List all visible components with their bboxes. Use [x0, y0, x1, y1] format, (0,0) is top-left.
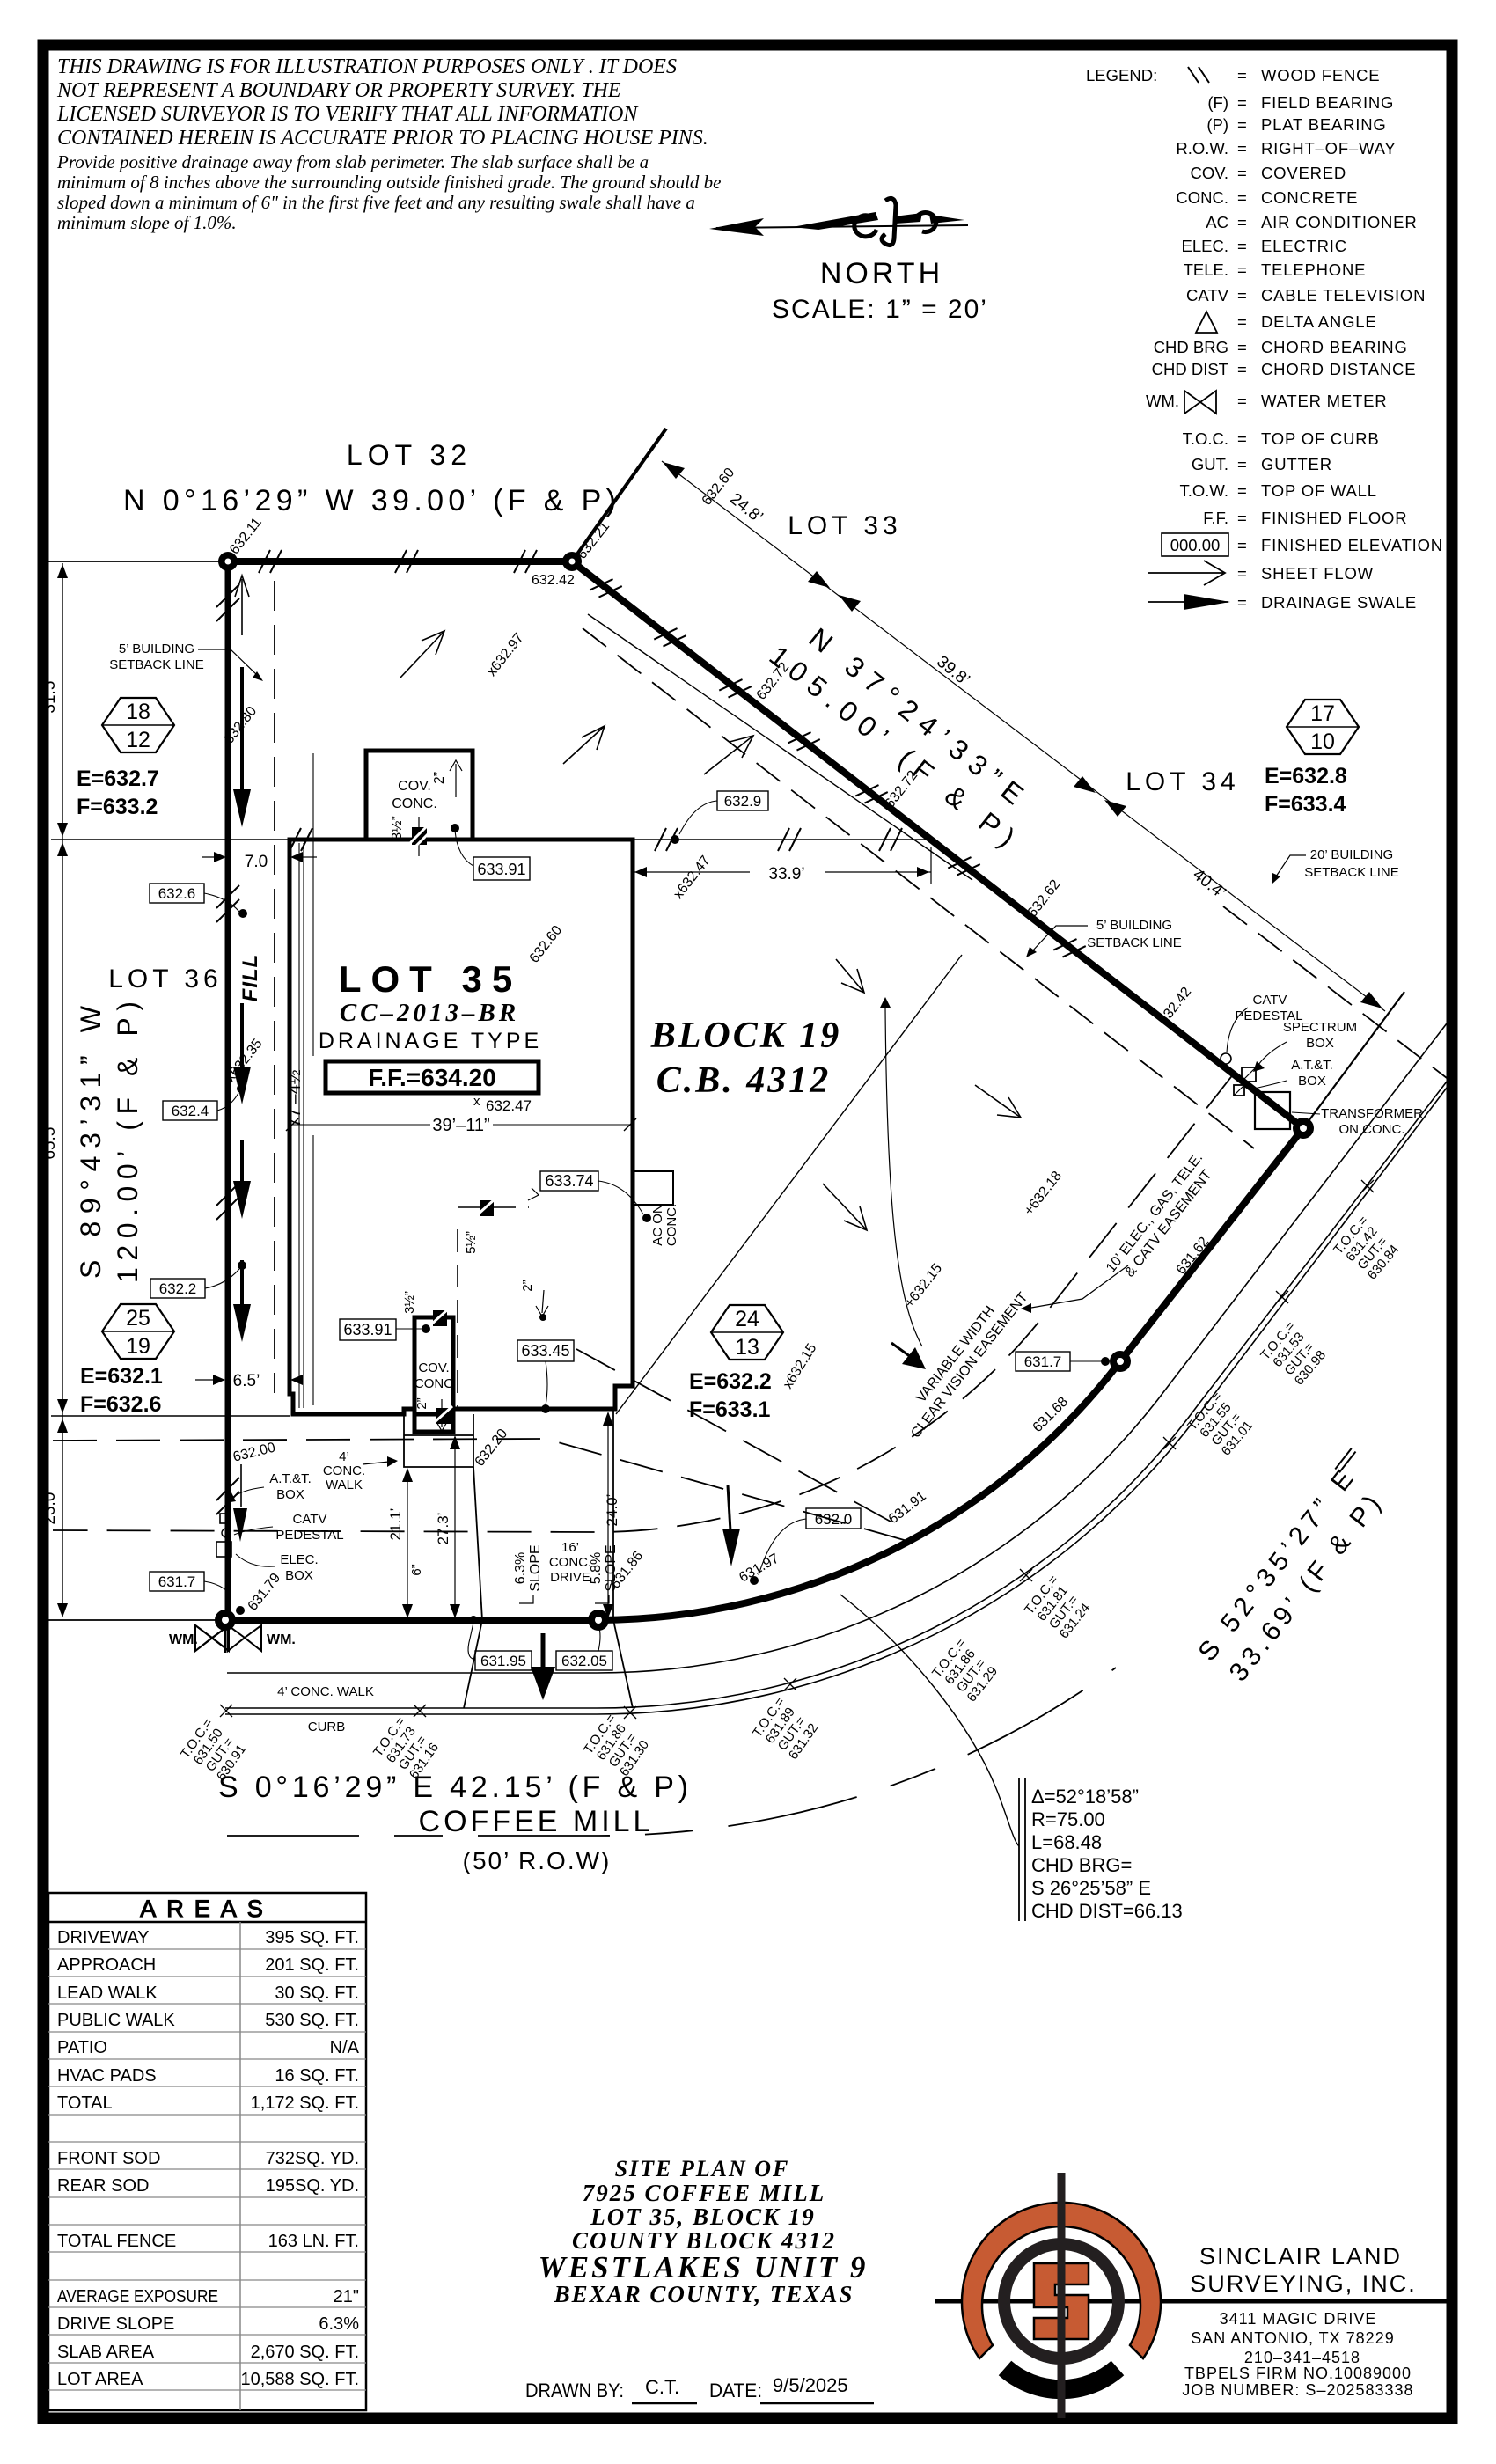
svg-text:SETBACK LINE: SETBACK LINE: [1304, 865, 1399, 880]
svg-text:=: =: [1237, 213, 1247, 231]
svg-text:632.6: 632.6: [158, 885, 196, 902]
svg-text:21": 21": [334, 2287, 359, 2306]
svg-text:BOX: BOX: [1306, 1036, 1334, 1051]
svg-text:3½”: 3½”: [402, 1291, 417, 1314]
svg-text:CHD BRG: CHD BRG: [1154, 338, 1228, 356]
svg-text:=: =: [1237, 66, 1247, 84]
svg-text:6”: 6”: [409, 1564, 424, 1575]
svg-text:SURVEYING, INC.: SURVEYING, INC.: [1190, 2270, 1417, 2297]
svg-text:33.9’: 33.9’: [768, 865, 804, 884]
svg-text:F=632.6: F=632.6: [80, 1392, 161, 1417]
svg-text:TOTAL: TOTAL: [57, 2094, 113, 2113]
svg-text:9/5/2025: 9/5/2025: [773, 2374, 848, 2396]
svg-text:6.5’: 6.5’: [233, 1372, 260, 1390]
svg-text:632.9: 632.9: [724, 793, 762, 810]
svg-text:LOT 35, BLOCK 19: LOT 35, BLOCK 19: [590, 2204, 816, 2230]
svg-text:3411 MAGIC DRIVE: 3411 MAGIC DRIVE: [1220, 2310, 1377, 2328]
svg-text:SLOPE: SLOPE: [604, 1544, 619, 1591]
svg-text:631.95: 631.95: [480, 1653, 526, 1669]
svg-text:x: x: [473, 1094, 480, 1109]
svg-text:AC: AC: [1206, 213, 1228, 231]
svg-text:19: 19: [126, 1334, 150, 1359]
svg-text:SPECTRUM: SPECTRUM: [1283, 1020, 1357, 1035]
svg-text:732SQ. YD.: 732SQ. YD.: [266, 2149, 359, 2168]
svg-text:10: 10: [1310, 730, 1335, 754]
svg-text:2”: 2”: [432, 772, 447, 784]
svg-text:JOB NUMBER: S–202583338: JOB NUMBER: S–202583338: [1182, 2381, 1413, 2399]
svg-text:LOT 36: LOT 36: [108, 964, 223, 994]
svg-text:R=75.00: R=75.00: [1031, 1808, 1105, 1830]
svg-text:1,172 SQ. FT.: 1,172 SQ. FT.: [251, 2094, 359, 2113]
svg-text:633.45: 633.45: [521, 1342, 569, 1360]
svg-text:CATV: CATV: [293, 1512, 327, 1527]
svg-text:2”: 2”: [414, 1397, 429, 1409]
svg-text:7925 COFFEE MILL: 7925 COFFEE MILL: [583, 2180, 826, 2206]
svg-text:=: =: [1237, 312, 1247, 331]
svg-text:SAN ANTONIO, TX 78229: SAN ANTONIO, TX 78229: [1191, 2329, 1394, 2347]
svg-text:3½”: 3½”: [390, 816, 405, 840]
svg-text:R.O.W.: R.O.W.: [1176, 139, 1228, 158]
svg-text:AVERAGE EXPOSURE: AVERAGE EXPOSURE: [57, 2287, 218, 2306]
svg-text:WESTLAKES UNIT 9: WESTLAKES UNIT 9: [539, 2250, 869, 2284]
svg-text:CHD DIST=66.13: CHD DIST=66.13: [1031, 1900, 1183, 1922]
svg-text:LOT 34: LOT 34: [1126, 767, 1240, 796]
svg-text:5½”: 5½”: [464, 1231, 479, 1254]
svg-text:TOTAL FENCE: TOTAL FENCE: [57, 2232, 176, 2251]
svg-text:24: 24: [735, 1307, 759, 1331]
svg-text:COVERED: COVERED: [1261, 164, 1346, 182]
svg-text:CONC.: CONC.: [392, 796, 437, 811]
svg-text:COV.: COV.: [418, 1360, 449, 1375]
svg-text:=: =: [1237, 429, 1247, 448]
svg-text:=: =: [1237, 509, 1247, 527]
svg-text:DATE:: DATE:: [709, 2380, 762, 2402]
svg-text:GUTTER: GUTTER: [1261, 455, 1332, 473]
svg-text:=: =: [1237, 286, 1247, 304]
svg-text:sloped down a minimum of 6" in: sloped down a minimum of 6" in the first…: [57, 192, 695, 213]
svg-text:BOX: BOX: [1298, 1074, 1326, 1089]
svg-text:NOT REPRESENT A BOUNDARY OR PR: NOT REPRESENT A BOUNDARY OR PROPERTY SUR…: [56, 79, 621, 102]
svg-text:TELEPHONE: TELEPHONE: [1261, 260, 1366, 279]
svg-text:LOT AREA: LOT AREA: [57, 2370, 143, 2389]
svg-text:LOT 32: LOT 32: [347, 439, 472, 471]
svg-text:BOX: BOX: [276, 1487, 304, 1502]
svg-text:27.3’: 27.3’: [435, 1513, 451, 1545]
svg-text:DRAINAGE TYPE: DRAINAGE TYPE: [319, 1029, 542, 1053]
svg-text:632.2: 632.2: [159, 1280, 197, 1297]
svg-text:10,588 SQ. FT.: 10,588 SQ. FT.: [240, 2370, 359, 2389]
svg-text:TBPELS FIRM NO.10089000: TBPELS FIRM NO.10089000: [1184, 2365, 1412, 2382]
svg-text:DRAINAGE SWALE: DRAINAGE SWALE: [1261, 593, 1417, 612]
svg-text:SCALE: 1” = 20’: SCALE: 1” = 20’: [772, 295, 988, 324]
svg-text:E=632.1: E=632.1: [80, 1364, 163, 1389]
svg-text:CC–2013–BR: CC–2013–BR: [340, 999, 519, 1027]
svg-text:Δ=52°18’58”: Δ=52°18’58”: [1031, 1786, 1139, 1808]
svg-text:632.4: 632.4: [172, 1103, 209, 1119]
svg-text:SLAB AREA: SLAB AREA: [57, 2343, 155, 2362]
svg-text:C.B. 4312: C.B. 4312: [656, 1060, 832, 1101]
svg-text:=: =: [1237, 564, 1247, 583]
svg-text:TRANSFORMER: TRANSFORMER: [1321, 1106, 1423, 1121]
svg-text:Provide positive drainage away: Provide positive drainage away from slab…: [56, 151, 649, 172]
svg-text:=: =: [1237, 455, 1247, 473]
svg-text:GUT.: GUT.: [1192, 455, 1228, 473]
svg-text:195SQ. YD.: 195SQ. YD.: [266, 2176, 359, 2196]
svg-text:632.0: 632.0: [815, 1511, 853, 1528]
svg-text:=: =: [1237, 93, 1247, 112]
svg-text:FIELD BEARING: FIELD BEARING: [1261, 93, 1394, 112]
svg-text:632.05: 632.05: [561, 1653, 607, 1669]
svg-text:CONC: CONC: [414, 1376, 453, 1391]
svg-text:39’–11”: 39’–11”: [432, 1116, 489, 1135]
svg-text:FRONT SOD: FRONT SOD: [57, 2149, 160, 2168]
svg-text:17: 17: [1310, 701, 1335, 726]
svg-text:PEDESTAL: PEDESTAL: [275, 1528, 343, 1543]
svg-text:SINCLAIR LAND: SINCLAIR LAND: [1199, 2243, 1402, 2270]
svg-text:ELECTRIC: ELECTRIC: [1261, 237, 1347, 255]
svg-text:THIS DRAWING IS FOR ILLUSTRATI: THIS DRAWING IS FOR ILLUSTRATION PURPOSE…: [57, 55, 677, 78]
svg-text:PUBLIC WALK: PUBLIC WALK: [57, 2011, 175, 2030]
svg-text:E=632.7: E=632.7: [77, 766, 159, 791]
svg-text:CABLE TELEVISION: CABLE TELEVISION: [1261, 286, 1426, 304]
svg-text:WM.: WM.: [267, 1632, 296, 1647]
svg-text:=: =: [1237, 481, 1247, 500]
svg-text:A.T.&T.: A.T.&T.: [269, 1471, 312, 1486]
svg-text:APPROACH: APPROACH: [57, 1955, 156, 1975]
svg-text:minimum slope of 1.0%.: minimum slope of 1.0%.: [57, 212, 237, 233]
svg-text:20’ BUILDING: 20’ BUILDING: [1310, 847, 1393, 862]
svg-text:F.F.=634.20: F.F.=634.20: [368, 1064, 496, 1091]
svg-text:LICENSED SURVEYOR IS TO VERIFY: LICENSED SURVEYOR IS TO VERIFY THAT ALL …: [56, 103, 639, 126]
svg-text:ELEC.: ELEC.: [1182, 237, 1228, 255]
svg-text:000.00: 000.00: [1170, 536, 1221, 554]
svg-text:F=633.2: F=633.2: [77, 795, 158, 819]
svg-text:TOP OF CURB: TOP OF CURB: [1261, 429, 1380, 448]
svg-text:18: 18: [126, 700, 150, 724]
svg-text:NORTH: NORTH: [820, 257, 943, 290]
svg-text:C.T.: C.T.: [645, 2376, 679, 2398]
svg-text:A.T.&T.: A.T.&T.: [1291, 1058, 1333, 1073]
svg-text:CHORD DISTANCE: CHORD DISTANCE: [1261, 360, 1416, 378]
svg-text:CONC.: CONC.: [323, 1463, 365, 1478]
svg-text:24.0’: 24.0’: [604, 1494, 620, 1527]
svg-text:7.0: 7.0: [245, 853, 268, 871]
svg-text:DRIVEWAY: DRIVEWAY: [57, 1928, 149, 1947]
svg-text:FINISHED ELEVATION: FINISHED ELEVATION: [1261, 536, 1443, 554]
svg-text:=: =: [1237, 338, 1247, 356]
svg-text:=: =: [1237, 237, 1247, 255]
svg-text:DRAWN BY:: DRAWN BY:: [525, 2380, 624, 2402]
svg-text:2,670 SQ. FT.: 2,670 SQ. FT.: [251, 2343, 359, 2362]
svg-text:65.5’: 65.5’: [40, 1123, 59, 1159]
svg-text:DRIVE: DRIVE: [550, 1570, 590, 1585]
svg-text:AREAS: AREAS: [140, 1896, 274, 1922]
svg-text:AIR CONDITIONER: AIR CONDITIONER: [1261, 213, 1417, 231]
svg-text:632.42: 632.42: [532, 573, 575, 588]
svg-text:PATIO: PATIO: [57, 2038, 107, 2057]
svg-text:CONC.: CONC.: [664, 1204, 679, 1246]
svg-text:S 26°25’58” E: S 26°25’58” E: [1031, 1877, 1151, 1899]
svg-text:16 SQ. FT.: 16 SQ. FT.: [275, 2066, 359, 2086]
svg-text:BOX: BOX: [285, 1568, 313, 1583]
svg-text:SETBACK LINE: SETBACK LINE: [109, 657, 204, 672]
svg-text:25: 25: [126, 1306, 150, 1331]
svg-text:530 SQ. FT.: 530 SQ. FT.: [265, 2011, 359, 2030]
svg-text:CURB: CURB: [308, 1720, 346, 1734]
svg-text:4’ CONC. WALK: 4’ CONC. WALK: [277, 1684, 374, 1699]
svg-text:5’ BUILDING: 5’ BUILDING: [1096, 918, 1172, 933]
svg-text:632.47: 632.47: [486, 1097, 532, 1114]
svg-text:6.3%: 6.3%: [319, 2314, 359, 2334]
svg-text:ELEC.: ELEC.: [280, 1552, 318, 1567]
svg-text:633.91: 633.91: [343, 1321, 392, 1338]
svg-text:(F): (F): [1207, 93, 1228, 112]
svg-text:16’: 16’: [561, 1540, 579, 1555]
svg-text:=: =: [1237, 593, 1247, 612]
svg-text:=: =: [1237, 360, 1247, 378]
svg-text:COFFEE MILL: COFFEE MILL: [419, 1805, 654, 1838]
svg-text:E=632.8: E=632.8: [1265, 764, 1347, 788]
svg-text:AC ON: AC ON: [650, 1204, 665, 1246]
svg-text:minimum of 8 inches above the: minimum of 8 inches above the surroundin…: [57, 172, 721, 193]
svg-text:CATV: CATV: [1253, 993, 1287, 1008]
svg-text:=: =: [1237, 260, 1247, 279]
svg-text:TELE.: TELE.: [1184, 260, 1228, 279]
svg-text:21.1’: 21.1’: [387, 1508, 404, 1541]
svg-text:6.3%: 6.3%: [513, 1552, 528, 1584]
svg-text:633.91: 633.91: [477, 861, 525, 878]
svg-text:LEGEND:: LEGEND:: [1086, 66, 1157, 84]
svg-text:631.7: 631.7: [158, 1573, 196, 1590]
svg-text:SETBACK LINE: SETBACK LINE: [1087, 935, 1182, 950]
svg-text:(P): (P): [1206, 115, 1228, 134]
svg-text:COV.: COV.: [1190, 164, 1228, 182]
svg-text:ON CONC.: ON CONC.: [1339, 1122, 1405, 1137]
svg-text:CONCRETE: CONCRETE: [1261, 188, 1358, 207]
svg-text:163 LN. FT.: 163 LN. FT.: [268, 2232, 359, 2251]
svg-text:WM.: WM.: [169, 1632, 198, 1647]
svg-text:5’ BUILDING: 5’ BUILDING: [119, 642, 194, 656]
svg-text:F=633.1: F=633.1: [689, 1397, 771, 1422]
svg-text:=: =: [1237, 188, 1247, 207]
svg-text:395 SQ. FT.: 395 SQ. FT.: [265, 1928, 359, 1947]
svg-text:WALK: WALK: [326, 1478, 363, 1492]
svg-text:L=68.48: L=68.48: [1031, 1831, 1102, 1853]
svg-text:FINISHED FLOOR: FINISHED FLOOR: [1261, 509, 1407, 527]
svg-text:633.74: 633.74: [545, 1172, 593, 1190]
svg-text:LOT 33: LOT 33: [788, 511, 902, 540]
svg-text:30 SQ. FT.: 30 SQ. FT.: [275, 1984, 359, 2003]
svg-text:=: =: [1237, 139, 1247, 158]
svg-text:T.O.C.: T.O.C.: [1183, 429, 1228, 448]
svg-text:RIGHT–OF–WAY: RIGHT–OF–WAY: [1261, 139, 1397, 158]
svg-text:COV.: COV.: [398, 779, 431, 794]
svg-text:N/A: N/A: [330, 2038, 360, 2057]
svg-text:CATV: CATV: [1186, 286, 1229, 304]
svg-text:LOT 35: LOT 35: [339, 958, 522, 1000]
svg-text:77’–4½”: 77’–4½”: [285, 1064, 304, 1127]
svg-text:CHD DIST: CHD DIST: [1152, 360, 1228, 378]
svg-text:F.F.: F.F.: [1203, 509, 1228, 527]
svg-text:SHEET FLOW: SHEET FLOW: [1261, 564, 1374, 583]
svg-text:WOOD FENCE: WOOD FENCE: [1261, 66, 1380, 84]
svg-text:=: =: [1237, 392, 1247, 410]
svg-text:FILL: FILL: [238, 954, 262, 1002]
svg-text:BEXAR COUNTY, TEXAS: BEXAR COUNTY, TEXAS: [554, 2281, 854, 2307]
svg-text:PLAT BEARING: PLAT BEARING: [1261, 115, 1387, 134]
svg-text:CONC.: CONC.: [1176, 188, 1228, 207]
svg-text:CONTAINED HEREIN IS ACCURATE P: CONTAINED HEREIN IS ACCURATE PRIOR TO PL…: [57, 127, 708, 150]
svg-text:2”: 2”: [520, 1280, 535, 1291]
svg-text:LEAD WALK: LEAD WALK: [57, 1984, 158, 2003]
svg-text:631.7: 631.7: [1024, 1353, 1062, 1370]
svg-text:4’: 4’: [339, 1449, 349, 1464]
svg-text:SLOPE: SLOPE: [528, 1544, 543, 1591]
svg-text:DELTA ANGLE: DELTA ANGLE: [1261, 312, 1377, 331]
svg-text:REAR SOD: REAR SOD: [57, 2176, 149, 2196]
svg-text:DRIVE SLOPE: DRIVE SLOPE: [57, 2314, 174, 2334]
svg-text:=: =: [1237, 536, 1247, 554]
svg-text:CHORD BEARING: CHORD BEARING: [1261, 338, 1408, 356]
svg-text:T.O.W.: T.O.W.: [1180, 481, 1229, 500]
svg-text:12: 12: [126, 728, 150, 752]
svg-text:SITE PLAN OF: SITE PLAN OF: [615, 2156, 790, 2182]
svg-text:CONC.: CONC.: [549, 1555, 591, 1570]
svg-text:=: =: [1237, 115, 1247, 134]
svg-text:S 89°43’31” W: S 89°43’31” W: [75, 1005, 106, 1279]
svg-text:F=633.4: F=633.4: [1265, 792, 1346, 817]
svg-text:5.8%: 5.8%: [589, 1552, 604, 1584]
svg-text:WM.: WM.: [1146, 392, 1179, 410]
svg-text:HVAC PADS: HVAC PADS: [57, 2066, 157, 2086]
svg-text:BLOCK 19: BLOCK 19: [650, 1016, 842, 1056]
svg-text:E=632.2: E=632.2: [689, 1369, 772, 1394]
svg-text:13: 13: [735, 1335, 759, 1360]
svg-text:31.5’: 31.5’: [40, 677, 59, 713]
svg-text:201 SQ. FT.: 201 SQ. FT.: [265, 1955, 359, 1975]
svg-text:CHD BRG=: CHD BRG=: [1031, 1854, 1132, 1876]
svg-text:TOP OF WALL: TOP OF WALL: [1261, 481, 1377, 500]
svg-text:23.0’: 23.0’: [40, 1488, 59, 1524]
svg-text:=: =: [1237, 164, 1247, 182]
svg-text:WATER METER: WATER METER: [1261, 392, 1387, 410]
svg-text:210–341–4518: 210–341–4518: [1244, 2349, 1360, 2366]
svg-text:(50’ R.O.W): (50’ R.O.W): [463, 1847, 612, 1874]
